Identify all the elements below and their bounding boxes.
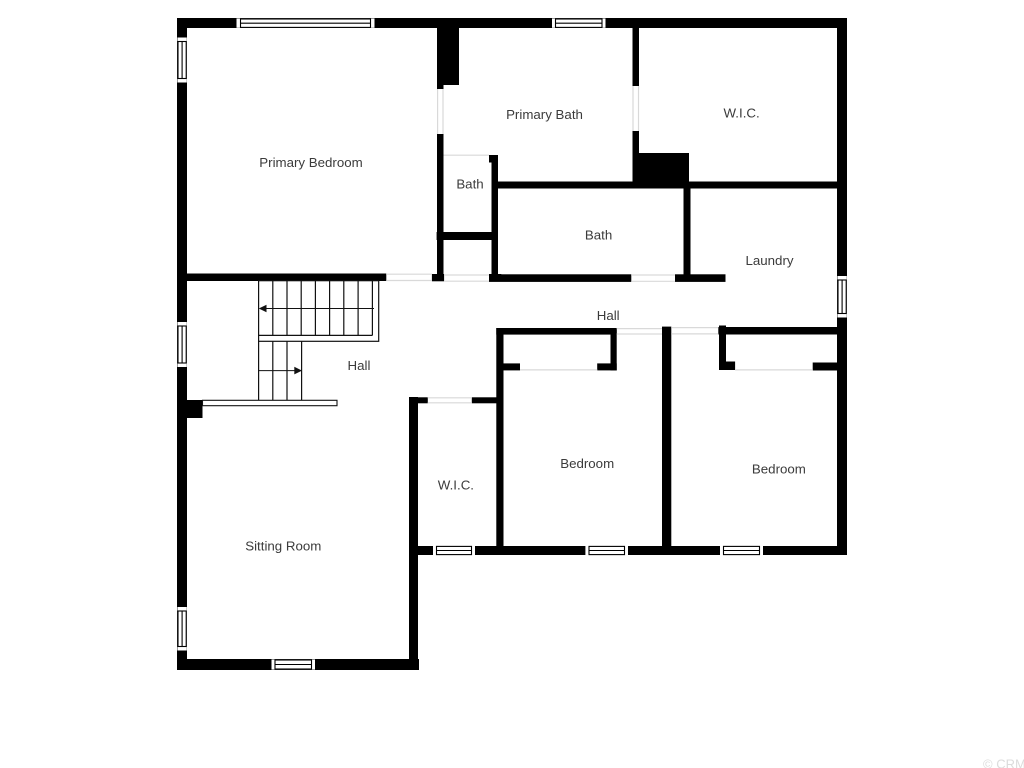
- svg-text:Bath: Bath: [456, 176, 483, 191]
- svg-text:Bath: Bath: [585, 227, 612, 242]
- svg-text:Sitting Room: Sitting Room: [245, 539, 321, 554]
- svg-text:Bedroom: Bedroom: [752, 461, 806, 476]
- svg-text:Primary Bath: Primary Bath: [506, 107, 583, 122]
- svg-text:Hall: Hall: [597, 308, 620, 323]
- svg-text:W.I.C.: W.I.C.: [438, 478, 474, 493]
- svg-text:© CRMLS: © CRMLS: [983, 757, 1024, 768]
- svg-text:Primary Bedroom: Primary Bedroom: [259, 155, 362, 170]
- svg-text:W.I.C.: W.I.C.: [723, 105, 759, 120]
- svg-text:Laundry: Laundry: [745, 253, 793, 268]
- svg-text:Hall: Hall: [348, 358, 371, 373]
- svg-text:Bedroom: Bedroom: [560, 456, 614, 471]
